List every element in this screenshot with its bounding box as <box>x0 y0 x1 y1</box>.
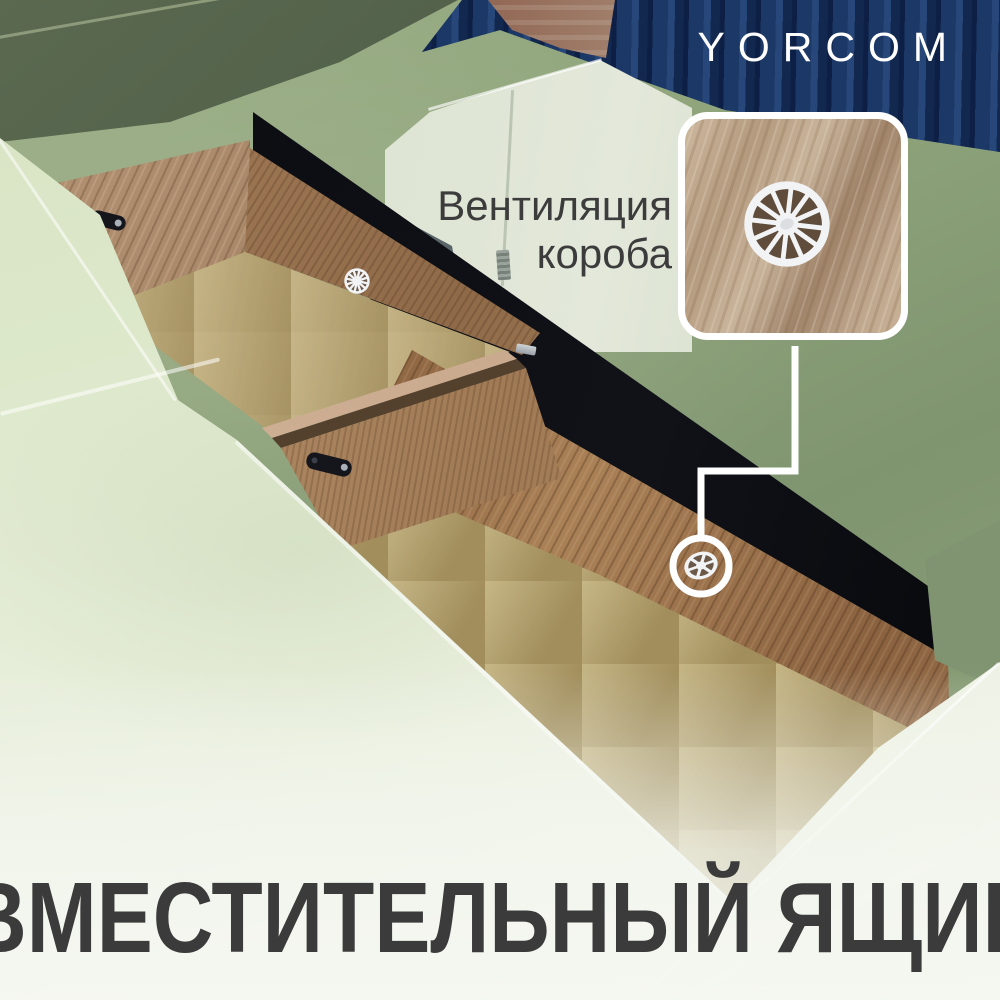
product-banner: YORCOM Вентиляция короба ВМЕСТИТЕЛЬНЫЙ Я… <box>0 0 1000 1000</box>
zoom-inset-card <box>678 112 908 340</box>
vent-grommet-icon <box>728 163 847 285</box>
headline-text: ВМЕСТИТЕЛЬНЫЙ ЯЩИК <box>0 868 1000 968</box>
brand-logo: YORCOM <box>698 24 961 71</box>
callout-line-2: короба <box>437 230 672 278</box>
callout-line-1: Вентиляция <box>437 182 672 230</box>
callout-text: Вентиляция короба <box>437 182 672 278</box>
